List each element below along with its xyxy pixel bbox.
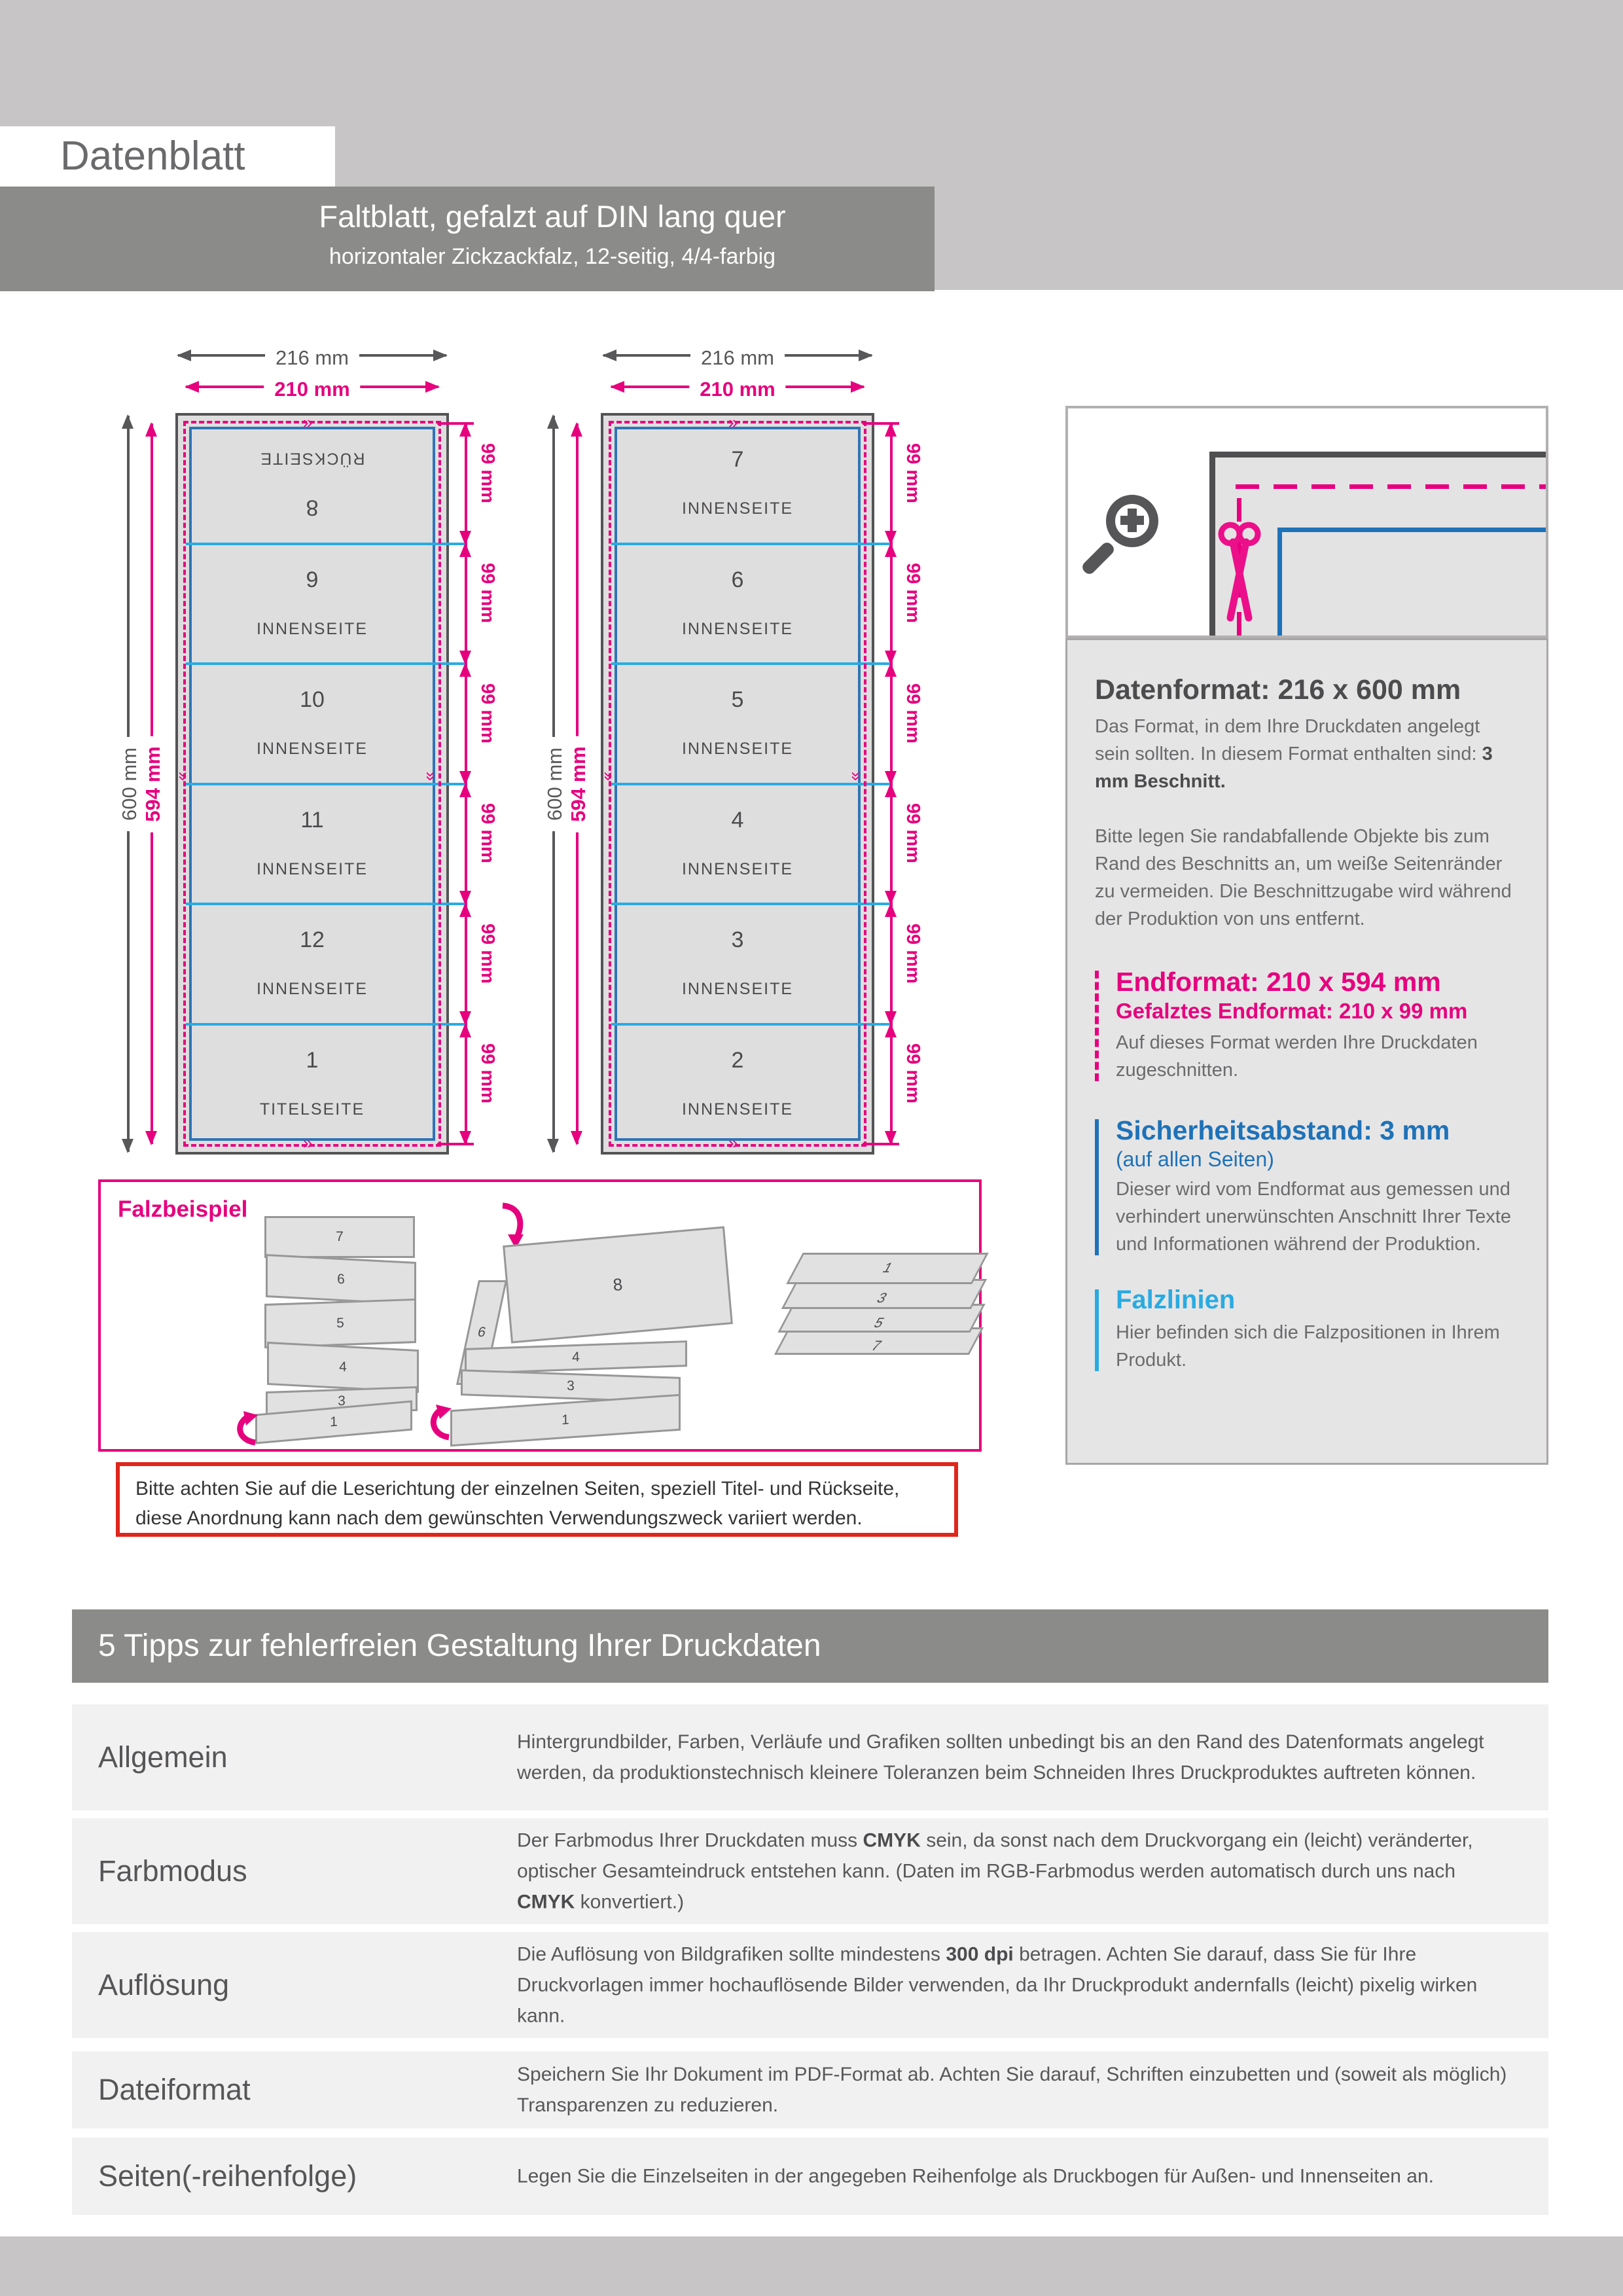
dim-segment: 99 mm xyxy=(465,544,467,664)
panel-label: RÜCKSEITE xyxy=(186,449,438,468)
dim-width-trim-label: 210 mm xyxy=(264,378,360,401)
tips-row-label: Allgemein xyxy=(98,1740,228,1774)
tips-row-label: Auflösung xyxy=(98,1968,229,2002)
dim-segment: 99 mm xyxy=(465,904,467,1024)
panel-label: INNENSEITE xyxy=(611,620,864,639)
tips-row-1: AllgemeinHintergrundbilder, Farben, Verl… xyxy=(72,1704,1548,1810)
tips-row-4: DateiformatSpeichern Sie Ihr Dokument im… xyxy=(72,2051,1548,2128)
note-text: Bitte achten Sie auf die Leserichtung de… xyxy=(120,1466,954,1533)
sheet-panel-8: 8RÜCKSEITE xyxy=(186,423,438,544)
dim-segment-label: 99 mm xyxy=(902,683,923,744)
panel-label: INNENSEITE xyxy=(611,499,864,518)
endformat-text: Auf dieses Format werden Ihre Druckdaten… xyxy=(1116,1029,1519,1084)
zoom-in-icon xyxy=(1080,540,1116,576)
fold-direction-arrow-icon xyxy=(229,1410,263,1446)
fold-strip-panel: 4 xyxy=(267,1342,419,1393)
dim-width-bleed: 216 mm xyxy=(178,354,446,357)
dim-segment-label: 99 mm xyxy=(476,924,498,984)
tips-row-text: Hintergrundbilder, Farben, Verläufe und … xyxy=(517,1727,1512,1788)
footer-band xyxy=(0,2236,1623,2296)
fold-example-box: Falzbeispiel 7 6 5 4 3 1 6 8 4 3 1 1 3 5… xyxy=(98,1179,982,1452)
sheet-panel-12: 12INNENSEITE xyxy=(186,904,438,1024)
falzlinien-heading: Falzlinien xyxy=(1116,1285,1519,1315)
sheet-panel-4: 4INNENSEITE xyxy=(611,784,864,905)
fold-strip-panel: 6 xyxy=(266,1254,416,1305)
dim-height-bleed-label: 600 mm xyxy=(543,737,567,831)
sicherheitsabstand-section: Sicherheitsabstand: 3 mm (auf allen Seit… xyxy=(1095,1115,1519,1258)
panel-label: INNENSEITE xyxy=(611,860,864,879)
detail-bleed-border xyxy=(1209,452,1546,457)
dim-segment-label: 99 mm xyxy=(902,803,923,863)
endformat-section: Endformat: 210 x 594 mm Gefalztes Endfor… xyxy=(1095,967,1519,1084)
dim-height-trim-label: 594 mm xyxy=(141,736,165,832)
tips-row-text: Die Auflösung von Bildgrafiken sollte mi… xyxy=(517,1939,1512,2032)
panel-number: 8 xyxy=(186,495,438,520)
panel-label: INNENSEITE xyxy=(611,1100,864,1119)
dim-segment-label: 99 mm xyxy=(902,563,923,623)
dim-height-trim-label: 594 mm xyxy=(567,736,590,832)
fold-example-title: Falzbeispiel xyxy=(118,1196,247,1223)
endformat-heading: Endformat: 210 x 594 mm xyxy=(1116,967,1519,997)
tips-row-5: Seiten(-reihenfolge)Legen Sie die Einzel… xyxy=(72,2138,1548,2215)
sheet-panel-7: 7INNENSEITE xyxy=(611,423,864,544)
detail-safety-line xyxy=(1277,528,1546,532)
folded-stack-sheet: 1 xyxy=(786,1253,989,1284)
dim-segment-label: 99 mm xyxy=(476,1043,498,1103)
panel-number: 9 xyxy=(186,567,438,593)
dim-segment: 99 mm xyxy=(890,1024,893,1145)
panel-label: INNENSEITE xyxy=(186,980,438,999)
panel-number: 10 xyxy=(186,687,438,713)
scissors-icon xyxy=(1215,520,1264,624)
fold-strip-panel: 5 xyxy=(264,1299,416,1348)
panel-label: TITELSEITE xyxy=(186,1100,438,1119)
panel-label: INNENSEITE xyxy=(186,620,438,639)
half-folded-page: 4 xyxy=(465,1340,687,1374)
sheet-panel-1: 1TITELSEITE xyxy=(186,1024,438,1145)
dim-segment-label: 99 mm xyxy=(476,563,498,623)
dim-height-trim: 594 mm xyxy=(576,423,579,1144)
dim-segment-label: 99 mm xyxy=(476,803,498,863)
panel-label: INNENSEITE xyxy=(186,860,438,879)
dim-height-bleed-label: 600 mm xyxy=(118,737,141,831)
dim-height-bleed: 600 mm xyxy=(552,416,555,1152)
tips-row-label: Dateiformat xyxy=(98,2073,251,2107)
dim-segment-label: 99 mm xyxy=(902,924,923,984)
dim-segment-label: 99 mm xyxy=(476,683,498,744)
falzlinien-section: Falzlinien Hier befinden sich die Falzpo… xyxy=(1095,1285,1519,1374)
sheet-panel-6: 6INNENSEITE xyxy=(611,544,864,664)
dim-segment-label: 99 mm xyxy=(902,1043,923,1103)
falzlinien-text: Hier befinden sich die Falzpositionen in… xyxy=(1116,1319,1519,1374)
tips-row-label: Farbmodus xyxy=(98,1854,247,1888)
dim-segment: 99 mm xyxy=(465,423,467,544)
dim-height-bleed: 600 mm xyxy=(127,416,130,1152)
panel-label: INNENSEITE xyxy=(611,740,864,759)
sheet-panel-5: 5INNENSEITE xyxy=(611,664,864,784)
panel-number: 4 xyxy=(611,808,864,833)
panel-number: 6 xyxy=(611,567,864,593)
detail-safety-line xyxy=(1277,528,1282,636)
tips-heading-band: 5 Tipps zur fehlerfreien Gestaltung Ihre… xyxy=(72,1609,1548,1683)
sicherheitsabstand-text: Dieser wird vom Endformat aus gemessen u… xyxy=(1116,1175,1519,1258)
tips-row-2: FarbmodusDer Farbmodus Ihrer Druckdaten … xyxy=(72,1818,1548,1924)
fold-direction-arrow-icon xyxy=(423,1402,457,1441)
sicherheitsabstand-heading: Sicherheitsabstand: 3 mm xyxy=(1116,1115,1519,1146)
sheet-panel-9: 9INNENSEITE xyxy=(186,544,438,664)
bleed-detail-box xyxy=(1065,406,1548,638)
dim-segment: 99 mm xyxy=(890,423,893,544)
fold-strip-panel: 7 xyxy=(264,1216,415,1258)
panel-number: 5 xyxy=(611,687,864,713)
endformat-subheading: Gefalztes Endformat: 210 x 99 mm xyxy=(1116,999,1519,1024)
datenformat-heading: Datenformat: 216 x 600 mm xyxy=(1095,674,1519,706)
tips-heading: 5 Tipps zur fehlerfreien Gestaltung Ihre… xyxy=(98,1609,821,1683)
sheet-panel-10: 10INNENSEITE xyxy=(186,664,438,784)
panel-label: INNENSEITE xyxy=(611,980,864,999)
dim-width-trim-label: 210 mm xyxy=(689,378,785,401)
dim-width-trim: 210 mm xyxy=(186,386,438,388)
sheet-panel-2: 2INNENSEITE xyxy=(611,1024,864,1145)
half-folded-page: 8 xyxy=(503,1226,733,1343)
dim-width-bleed: 216 mm xyxy=(603,354,872,357)
datenformat-section: Datenformat: 216 x 600 mm Das Format, in… xyxy=(1095,674,1519,933)
format-info-box: Datenformat: 216 x 600 mm Das Format, in… xyxy=(1065,638,1548,1465)
tips-row-label: Seiten(-reihenfolge) xyxy=(98,2159,357,2193)
half-folded-page: 1 xyxy=(450,1394,681,1447)
dim-height-trim: 594 mm xyxy=(151,423,153,1144)
reading-direction-note: Bitte achten Sie auf die Leserichtung de… xyxy=(116,1462,958,1537)
panel-label: INNENSEITE xyxy=(186,740,438,759)
dim-segment-label: 99 mm xyxy=(902,443,923,503)
dim-segment: 99 mm xyxy=(890,904,893,1024)
dim-segment-label: 99 mm xyxy=(476,443,498,503)
panel-number: 12 xyxy=(186,927,438,953)
sicherheitsabstand-subheading: (auf allen Seiten) xyxy=(1116,1147,1519,1172)
sheet-panel-11: 11INNENSEITE xyxy=(186,784,438,905)
dim-segment: 99 mm xyxy=(465,664,467,784)
panel-number: 3 xyxy=(611,927,864,953)
dim-segment: 99 mm xyxy=(890,664,893,784)
dim-width-trim: 210 mm xyxy=(611,386,864,388)
dim-segment: 99 mm xyxy=(465,784,467,905)
datenformat-text: Das Format, in dem Ihre Druckdaten angel… xyxy=(1095,713,1519,795)
panel-number: 1 xyxy=(186,1048,438,1073)
tips-row-text: Der Farbmodus Ihrer Druckdaten muss CMYK… xyxy=(517,1825,1512,1918)
datenformat-text2: Bitte legen Sie randabfallende Objekte b… xyxy=(1095,823,1519,933)
fold-direction-arrow-icon xyxy=(493,1200,530,1250)
dim-segment: 99 mm xyxy=(465,1024,467,1145)
sheet-panel-3: 3INNENSEITE xyxy=(611,904,864,1024)
panel-number: 7 xyxy=(611,447,864,473)
panel-number: 11 xyxy=(186,808,438,833)
zoom-in-icon xyxy=(1128,509,1137,532)
dim-width-bleed-label: 216 mm xyxy=(690,346,785,370)
dim-segment: 99 mm xyxy=(890,544,893,664)
detail-trim-line xyxy=(1236,484,1546,489)
tips-row-3: AuflösungDie Auflösung von Bildgrafiken … xyxy=(72,1932,1548,2038)
dim-segment: 99 mm xyxy=(890,784,893,905)
dim-width-bleed-label: 216 mm xyxy=(265,346,359,370)
panel-number: 2 xyxy=(611,1048,864,1073)
tips-row-text: Speichern Sie Ihr Dokument im PDF-Format… xyxy=(517,2059,1512,2121)
tips-row-text: Legen Sie die Einzelseiten in der angege… xyxy=(517,2161,1512,2192)
